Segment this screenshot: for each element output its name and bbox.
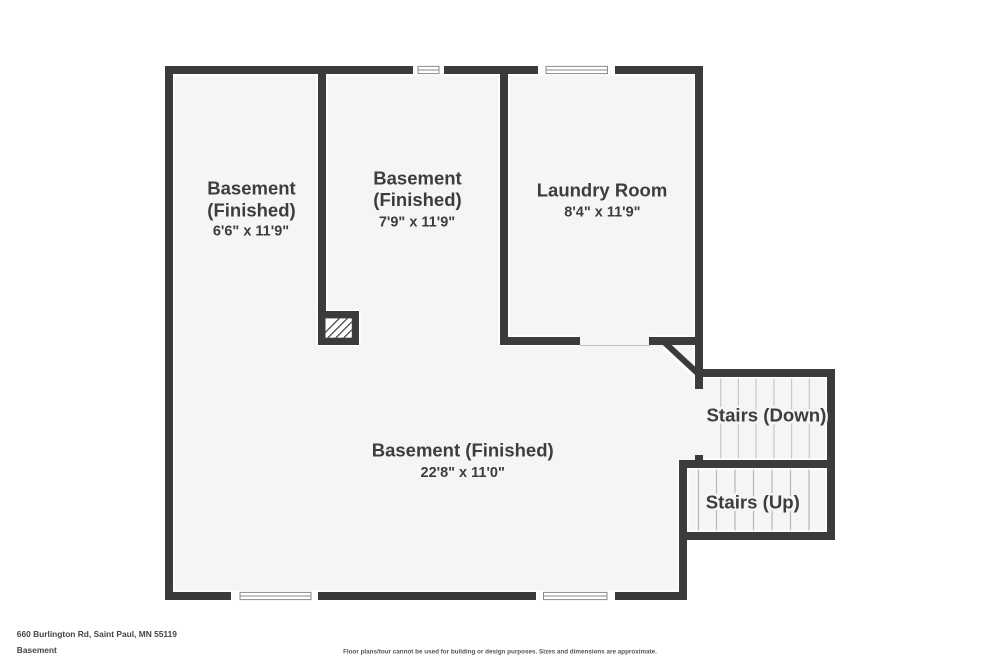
svg-text:Laundry Room: Laundry Room (537, 180, 668, 201)
svg-text:(Finished): (Finished) (373, 189, 461, 210)
svg-text:(Finished): (Finished) (207, 200, 295, 221)
svg-text:Basement (Finished): Basement (Finished) (372, 440, 554, 461)
svg-text:7'9" x 11'9": 7'9" x 11'9" (379, 214, 455, 230)
svg-text:Basement: Basement (373, 167, 461, 188)
svg-text:Basement: Basement (17, 645, 57, 655)
svg-text:8'4" x 11'9": 8'4" x 11'9" (564, 205, 640, 221)
svg-text:22'8" x 11'0": 22'8" x 11'0" (421, 465, 505, 481)
svg-text:Basement: Basement (207, 178, 295, 199)
svg-text:6'6" x 11'9": 6'6" x 11'9" (213, 224, 289, 240)
svg-text:Stairs (Up): Stairs (Up) (706, 491, 800, 512)
svg-text:660 Burlington Rd, Saint Paul,: 660 Burlington Rd, Saint Paul, MN 55119 (17, 629, 177, 639)
svg-text:Floor plans/tour cannot be use: Floor plans/tour cannot be used for buil… (343, 649, 657, 656)
svg-text:Stairs (Down): Stairs (Down) (706, 405, 826, 426)
